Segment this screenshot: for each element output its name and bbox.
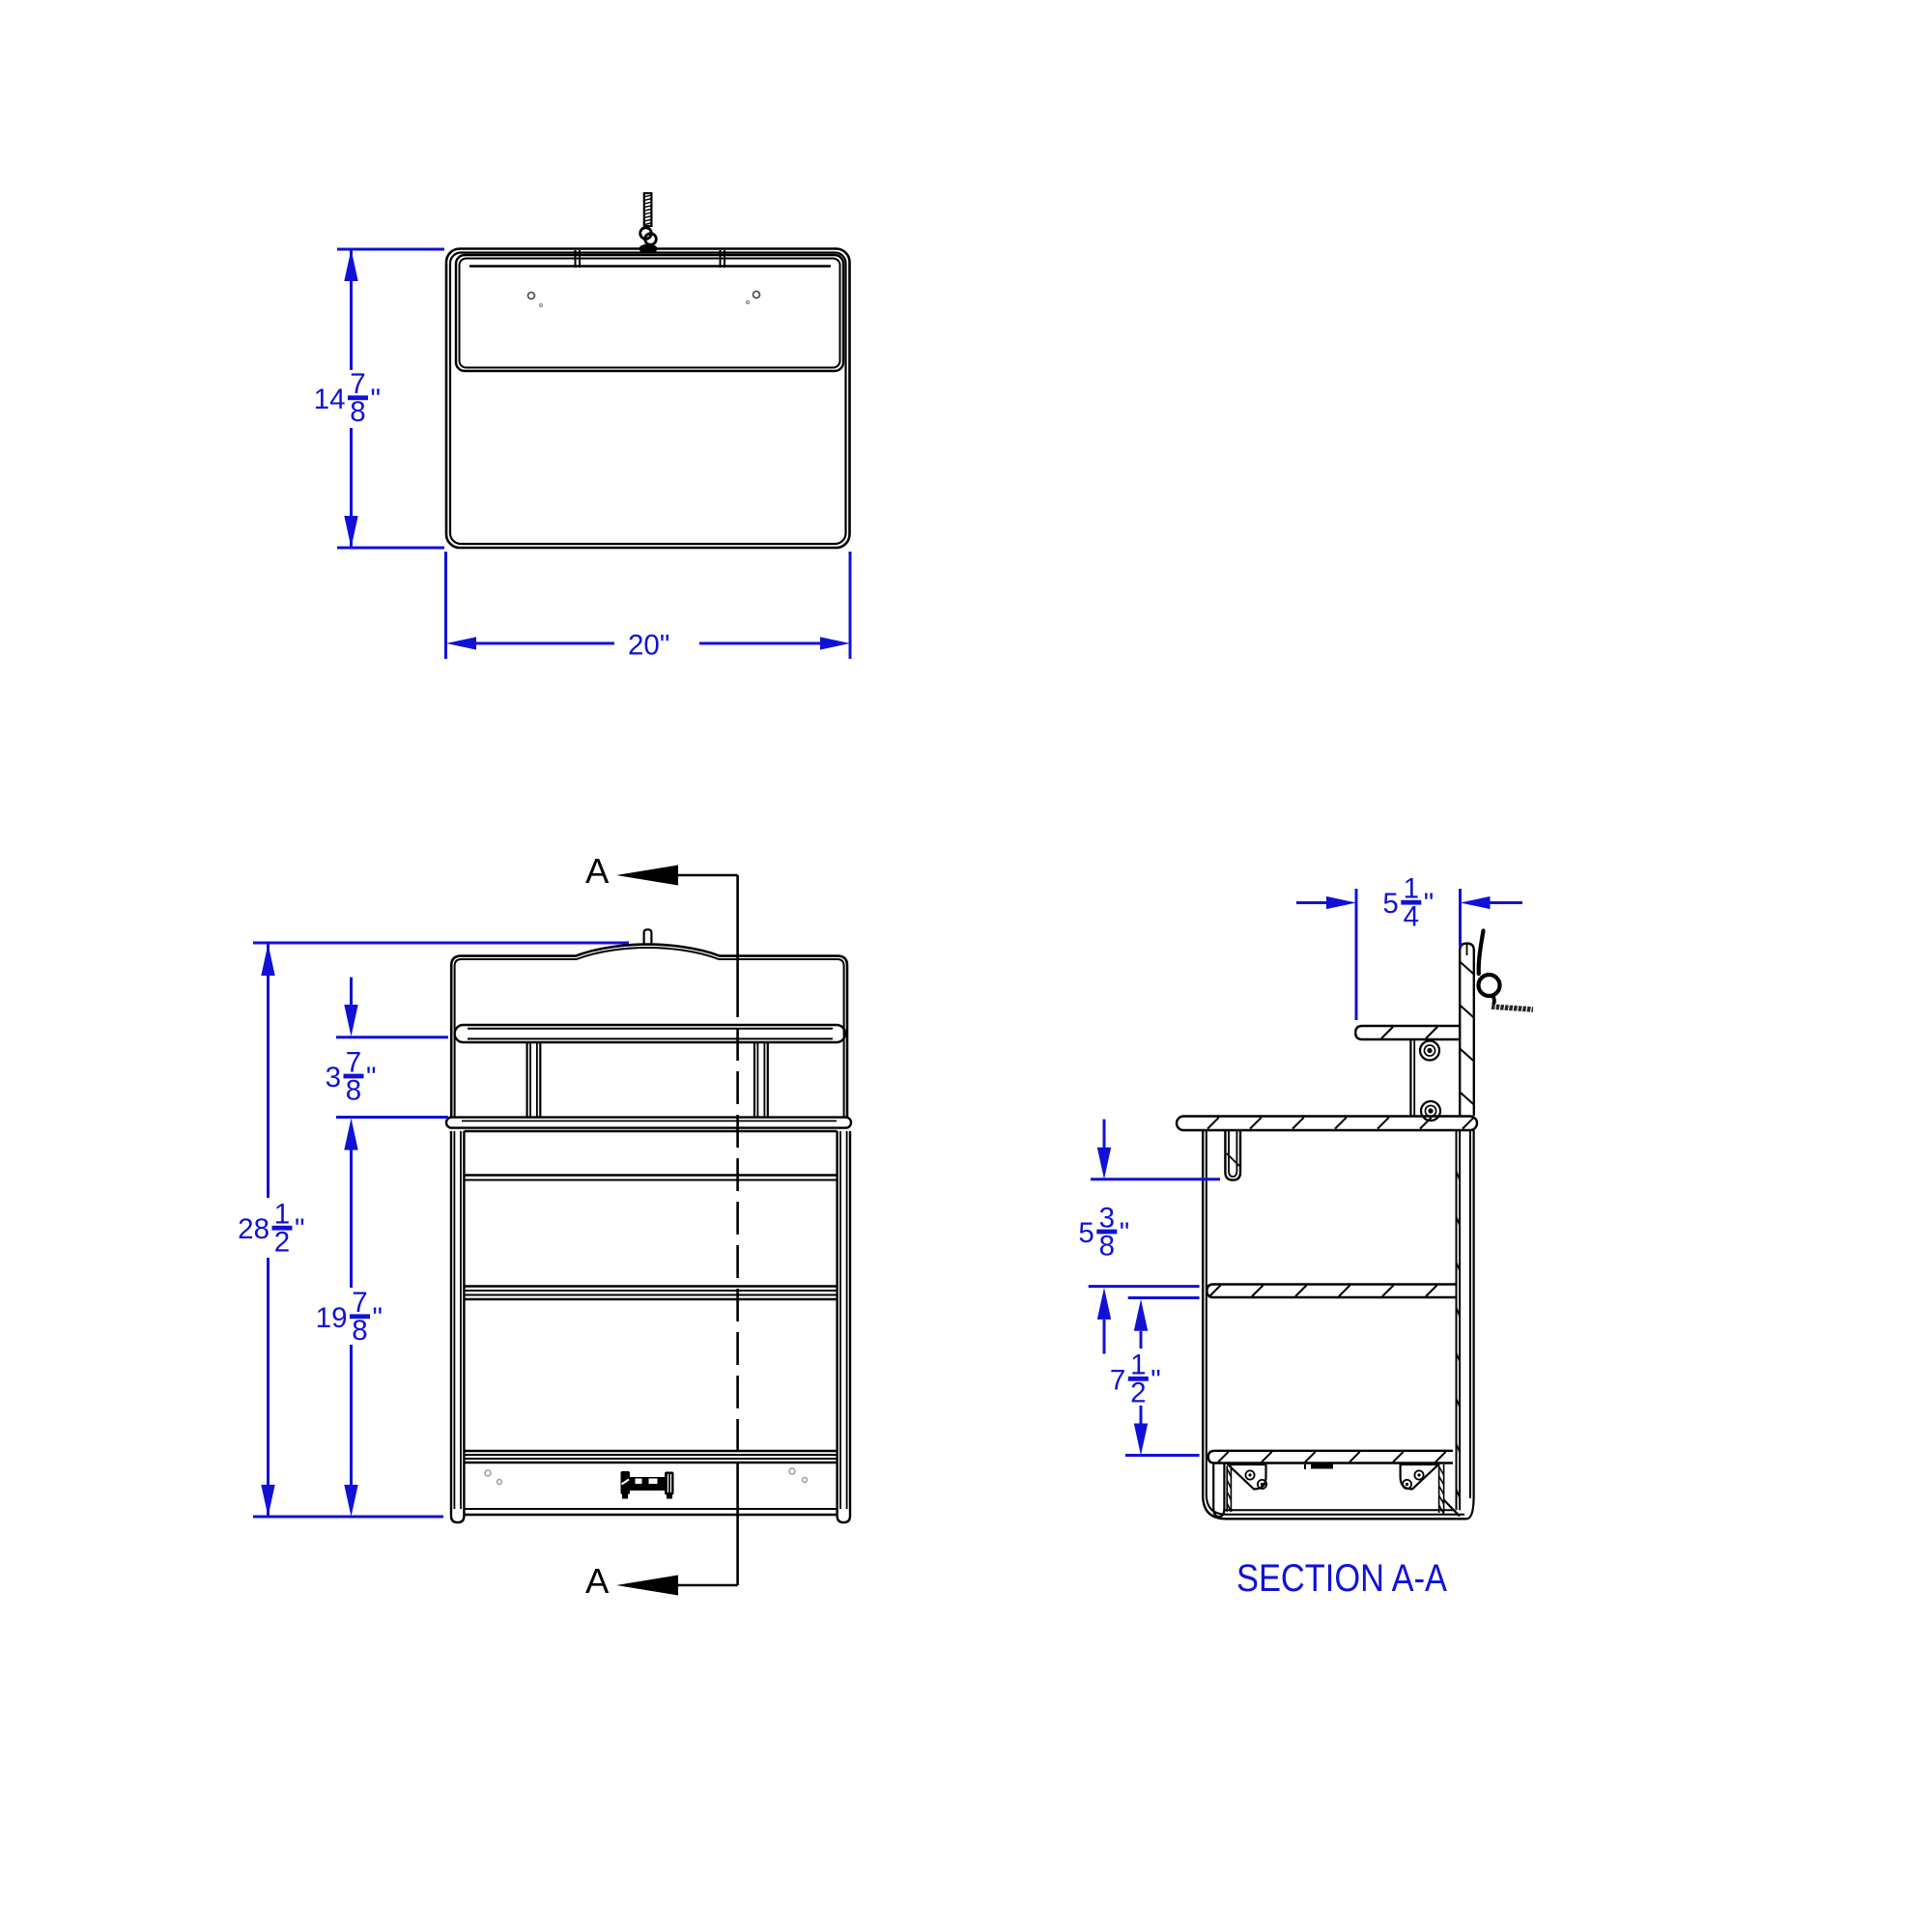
svg-text:14: 14 xyxy=(314,384,346,415)
svg-text:5: 5 xyxy=(1382,888,1398,920)
svg-text:3: 3 xyxy=(326,1062,341,1094)
svg-text:": " xyxy=(295,1213,304,1245)
svg-text:19: 19 xyxy=(316,1302,348,1334)
svg-text:8: 8 xyxy=(346,1074,361,1106)
svg-text:2: 2 xyxy=(1130,1378,1146,1409)
svg-text:7: 7 xyxy=(1110,1364,1125,1396)
svg-text:": " xyxy=(371,384,381,415)
svg-text:SECTION A-A: SECTION A-A xyxy=(1236,1557,1447,1600)
svg-text:20": 20" xyxy=(628,630,669,662)
svg-text:A: A xyxy=(585,1561,610,1601)
svg-text:": " xyxy=(373,1302,383,1334)
svg-text:": " xyxy=(366,1062,376,1094)
svg-text:2: 2 xyxy=(274,1227,290,1259)
svg-text:5: 5 xyxy=(1078,1217,1094,1249)
svg-text:": " xyxy=(1120,1217,1129,1249)
svg-text:8: 8 xyxy=(350,396,365,428)
svg-text:8: 8 xyxy=(352,1315,367,1347)
svg-text:": " xyxy=(1424,888,1434,920)
svg-text:4: 4 xyxy=(1404,901,1419,933)
svg-text:A: A xyxy=(585,851,610,891)
svg-text:8: 8 xyxy=(1099,1230,1115,1262)
svg-text:28: 28 xyxy=(238,1213,270,1245)
svg-text:": " xyxy=(1151,1364,1160,1396)
